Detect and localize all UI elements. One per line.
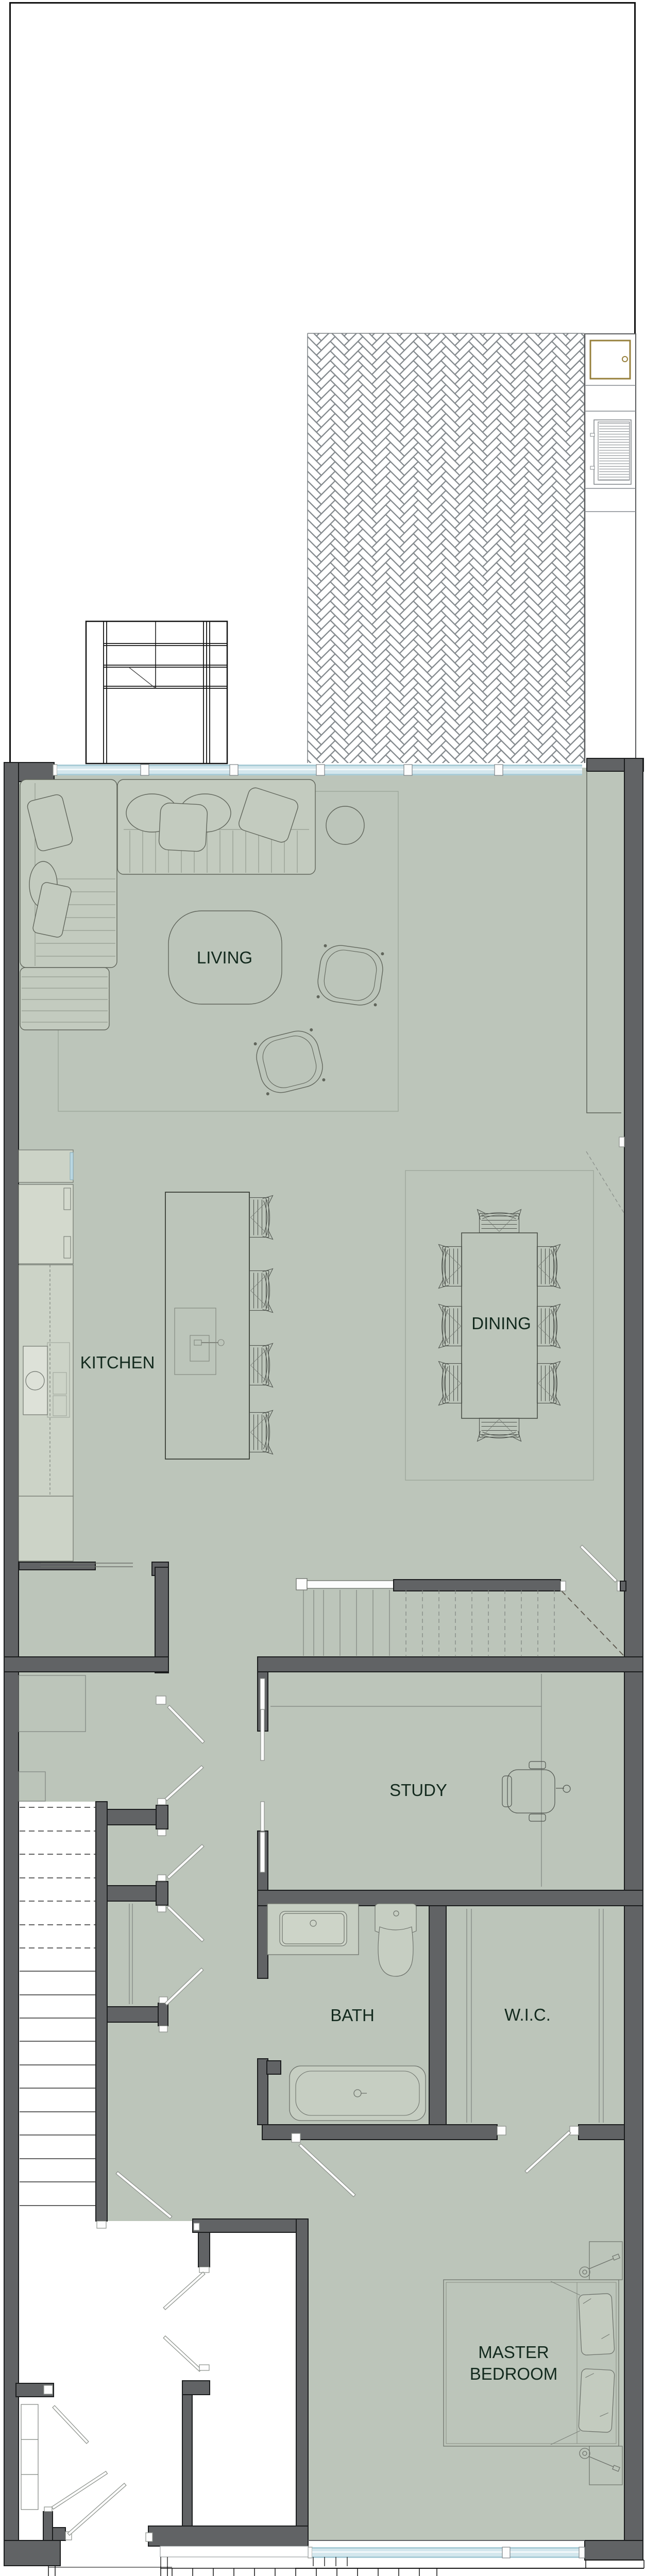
svg-text:DINING: DINING: [471, 1314, 531, 1333]
svg-text:LIVING: LIVING: [197, 948, 252, 967]
svg-text:MASTER: MASTER: [478, 2343, 549, 2362]
svg-text:W.I.C.: W.I.C.: [504, 2005, 551, 2024]
svg-text:BATH: BATH: [330, 2006, 375, 2025]
svg-text:STUDY: STUDY: [389, 1781, 447, 1800]
svg-text:BEDROOM: BEDROOM: [470, 2364, 558, 2383]
svg-text:KITCHEN: KITCHEN: [80, 1353, 155, 1372]
